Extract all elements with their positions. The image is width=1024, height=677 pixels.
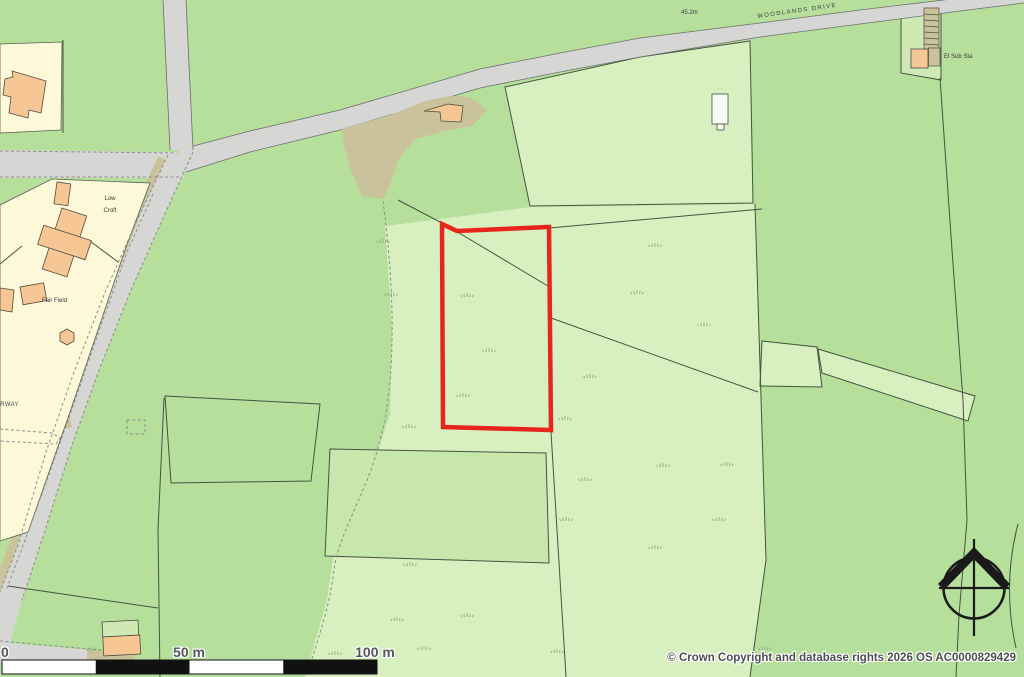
- low-croft-label-line1: Low: [98, 193, 122, 205]
- low-croft-label-line2: Croft: [98, 205, 122, 217]
- scale-bar: [2, 660, 377, 674]
- low-croft-label: Low Croft: [98, 193, 122, 217]
- substation-building: [911, 49, 928, 68]
- rough-pasture-areas: [0, 12, 975, 677]
- building-white-notch: [717, 124, 724, 130]
- street-label-partial: ARWAY: [0, 402, 19, 408]
- spot-height-label: 45.2m: [681, 10, 698, 16]
- north-arrow-icon: [939, 539, 1009, 636]
- scale-label-50m: 50 m: [173, 644, 205, 660]
- north-road: [163, 0, 193, 150]
- scale-label-zero: 0: [1, 644, 9, 660]
- fair-field-label: Fair Field: [42, 298, 67, 304]
- copyright-text: © Crown Copyright and database rights 20…: [667, 652, 1016, 664]
- scale-label-100m: 100 m: [355, 644, 395, 660]
- east-strip-1: [760, 341, 822, 387]
- building-southwest: [102, 620, 141, 656]
- building-garage: [54, 182, 71, 206]
- east-strip-2: [818, 349, 975, 421]
- central-pasture: [305, 204, 766, 677]
- substation-annex: [929, 48, 941, 66]
- building-white: [712, 94, 728, 124]
- inner-field: [325, 449, 549, 563]
- map-canvas: [0, 0, 1024, 677]
- building-hexagon: [60, 329, 74, 345]
- substation-label: El Sub Sta: [944, 54, 972, 60]
- building-edge-partial: [0, 288, 14, 312]
- os-map: WOODLANDS DRIVE 45.2m El Sub Sta Low Cro…: [0, 0, 1024, 677]
